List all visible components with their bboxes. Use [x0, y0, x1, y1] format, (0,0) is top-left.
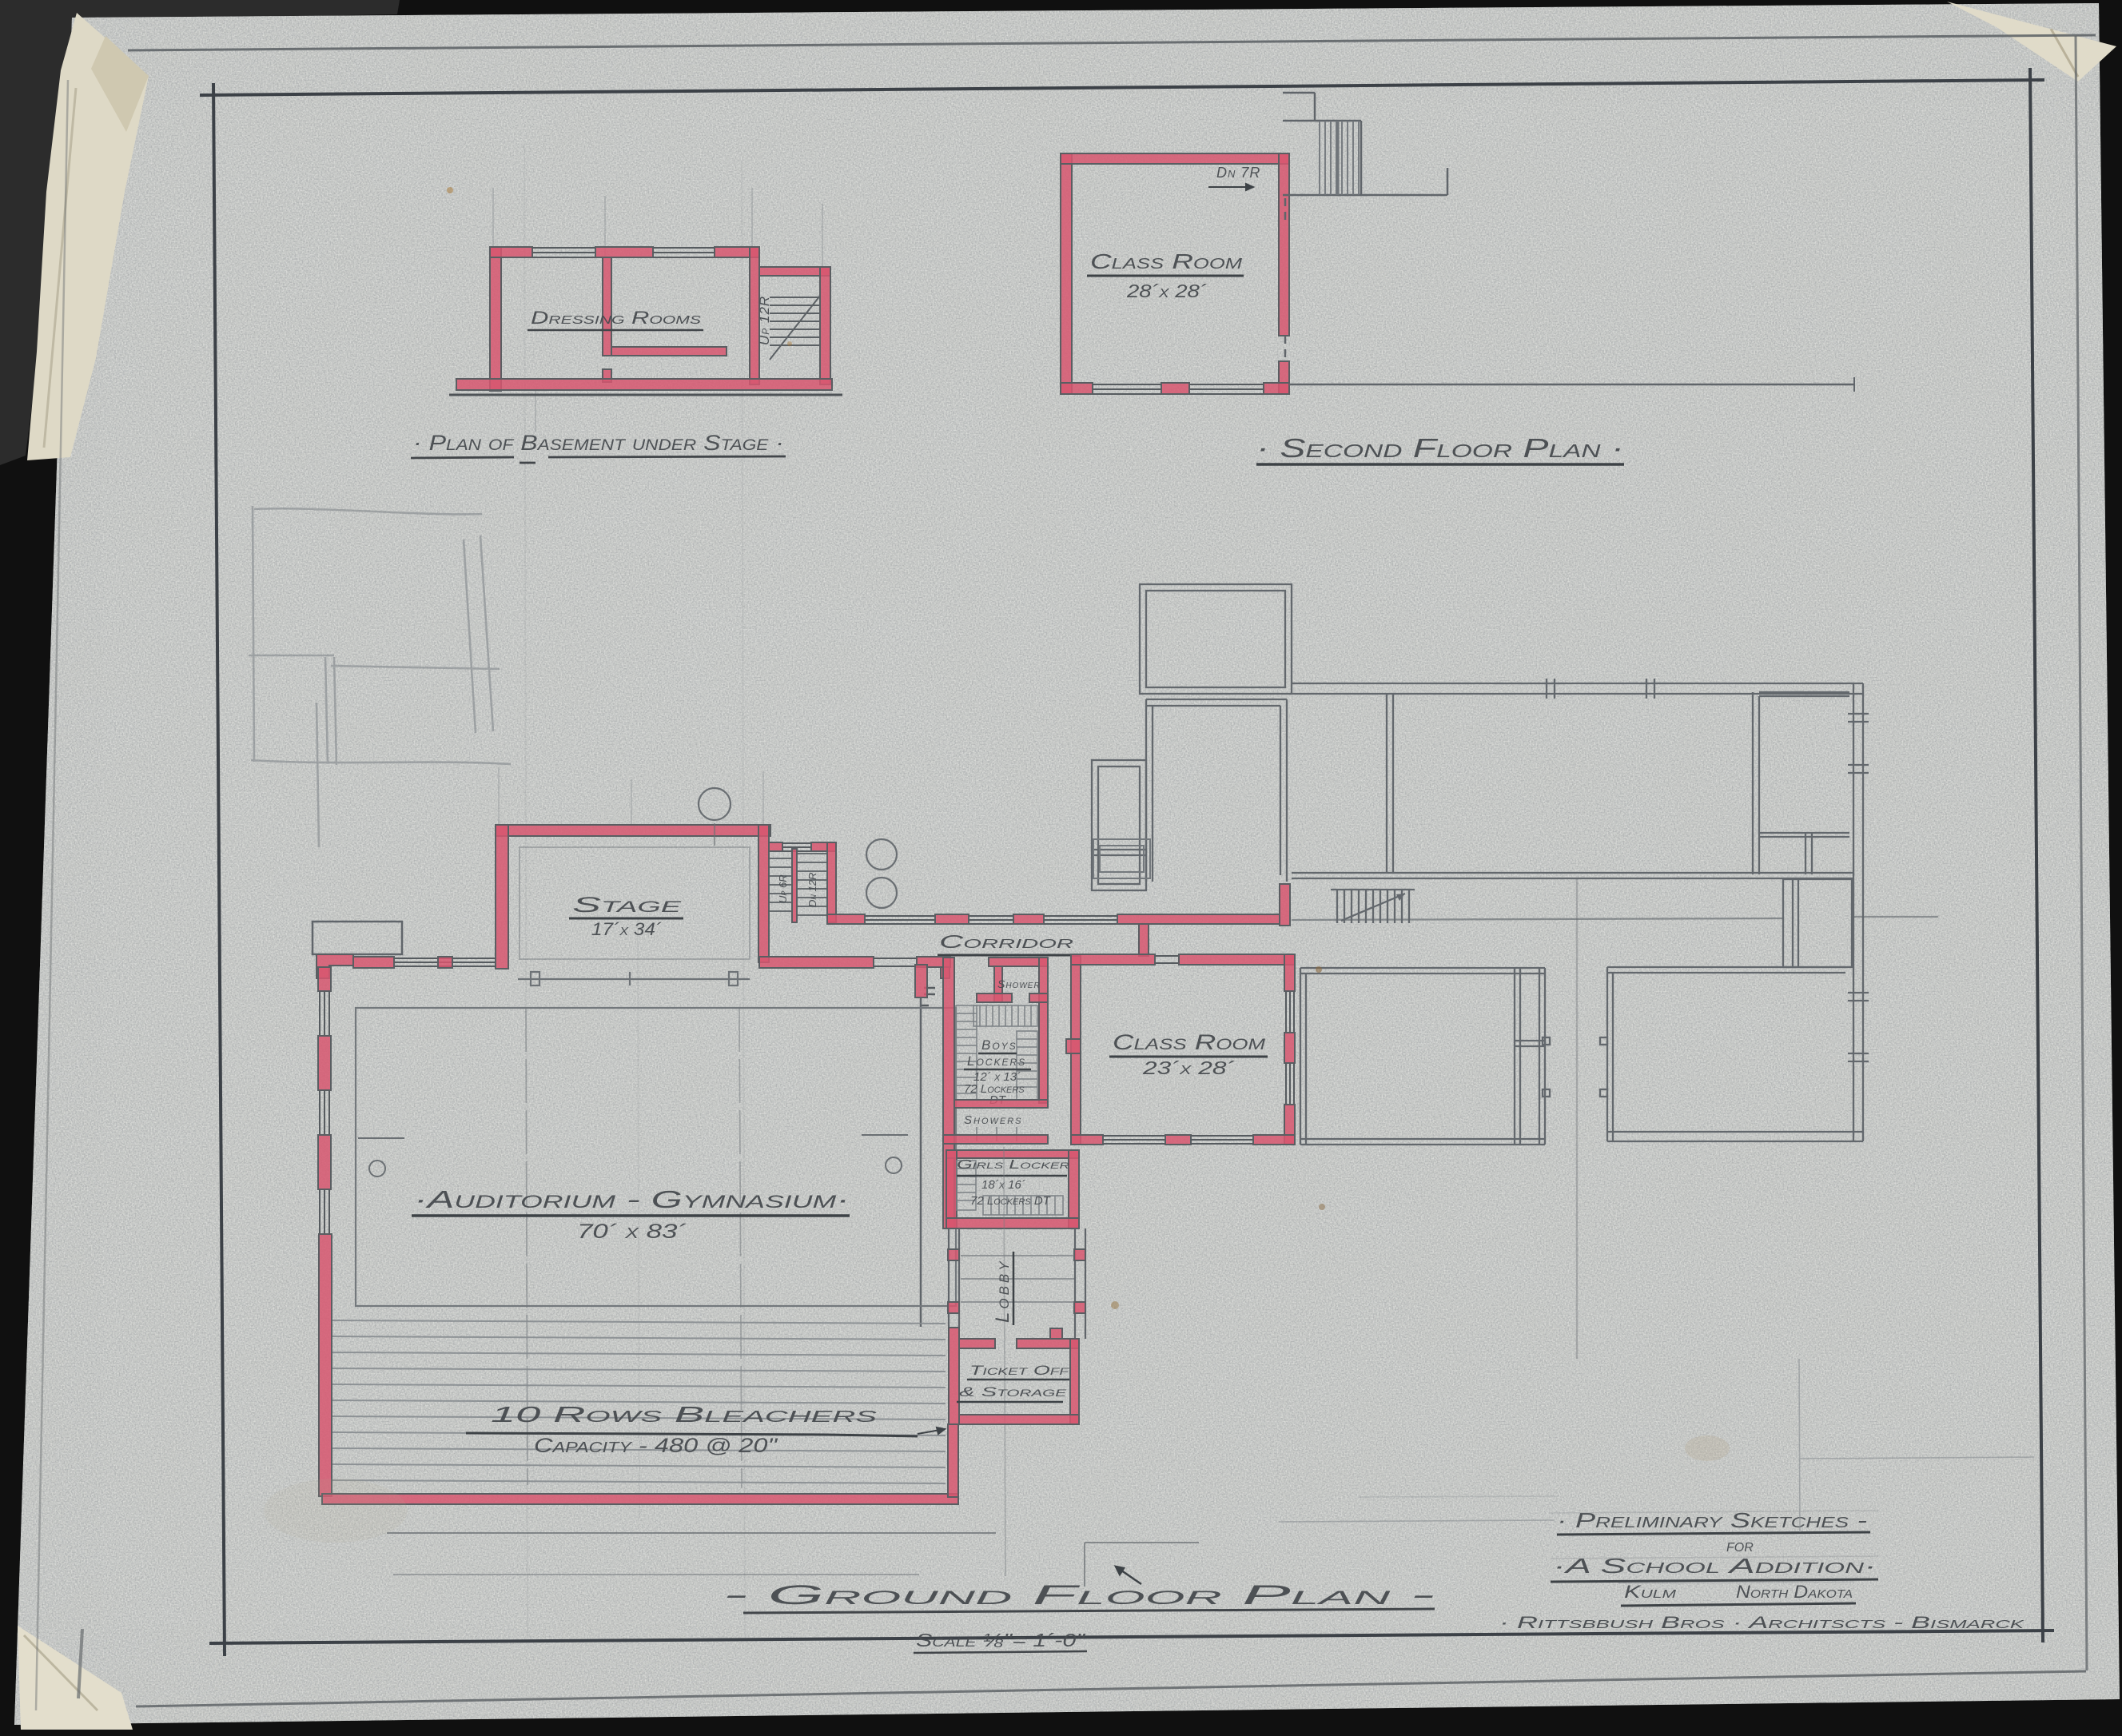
svg-text:·Auditorium - Gymnasium·: ·Auditorium - Gymnasium· [414, 1185, 850, 1213]
svg-text:Lockers: Lockers [967, 1053, 1026, 1069]
svg-text:Class Room: Class Room [1090, 249, 1242, 273]
svg-text:· Rittsbbush Bros · Architscts: · Rittsbbush Bros · Architscts - Bismarc… [1499, 1614, 2025, 1632]
svg-text:Dn 12R: Dn 12R [806, 873, 818, 907]
svg-text:& Storage: & Storage [959, 1384, 1068, 1400]
svg-text:Capacity - 480 @ 20": Capacity - 480 @ 20" [534, 1435, 778, 1457]
svg-text:Dn 7R: Dn 7R [1216, 165, 1260, 181]
svg-text:· Second Floor Plan ·: · Second Floor Plan · [1256, 433, 1624, 463]
svg-text:Shower: Shower [997, 977, 1041, 990]
svg-text:Kulm: Kulm [1624, 1582, 1677, 1602]
svg-text:· Plan of Basement under Stage: · Plan of Basement under Stage · [413, 431, 784, 455]
svg-text:70´ x 83´: 70´ x 83´ [577, 1220, 687, 1243]
svg-text:Up 6R: Up 6R [777, 874, 789, 903]
svg-text:Stage: Stage [572, 893, 682, 917]
svg-text:- Ground Floor Plan -: - Ground Floor Plan - [723, 1580, 1435, 1611]
svg-text:72 Lockers DT: 72 Lockers DT [970, 1194, 1052, 1208]
svg-text:Showers: Showers [964, 1113, 1023, 1127]
svg-text:Ticket Off: Ticket Off [969, 1363, 1069, 1378]
svg-text:28´x 28´: 28´x 28´ [1126, 281, 1208, 301]
svg-text:17´x 34´: 17´x 34´ [591, 919, 662, 939]
svg-text:Up 12R: Up 12R [757, 296, 772, 345]
svg-text:Lobby: Lobby [992, 1258, 1013, 1323]
svg-text:23´x 28´: 23´x 28´ [1142, 1057, 1236, 1078]
svg-text:Boys: Boys [981, 1037, 1017, 1053]
svg-text:Girls Locker: Girls Locker [957, 1158, 1069, 1172]
svg-text:Class Room: Class Room [1113, 1030, 1265, 1054]
svg-text:North Dakota: North Dakota [1736, 1582, 1853, 1602]
svg-text:Dressing Rooms: Dressing Rooms [531, 308, 701, 328]
svg-text:for: for [1726, 1535, 1754, 1555]
svg-text:10 Rows Bleachers: 10 Rows Bleachers [491, 1402, 878, 1427]
svg-text:Scale ⅛"= 1´-0": Scale ⅛"= 1´-0" [916, 1630, 1086, 1650]
svg-text:Corridor: Corridor [939, 931, 1074, 952]
